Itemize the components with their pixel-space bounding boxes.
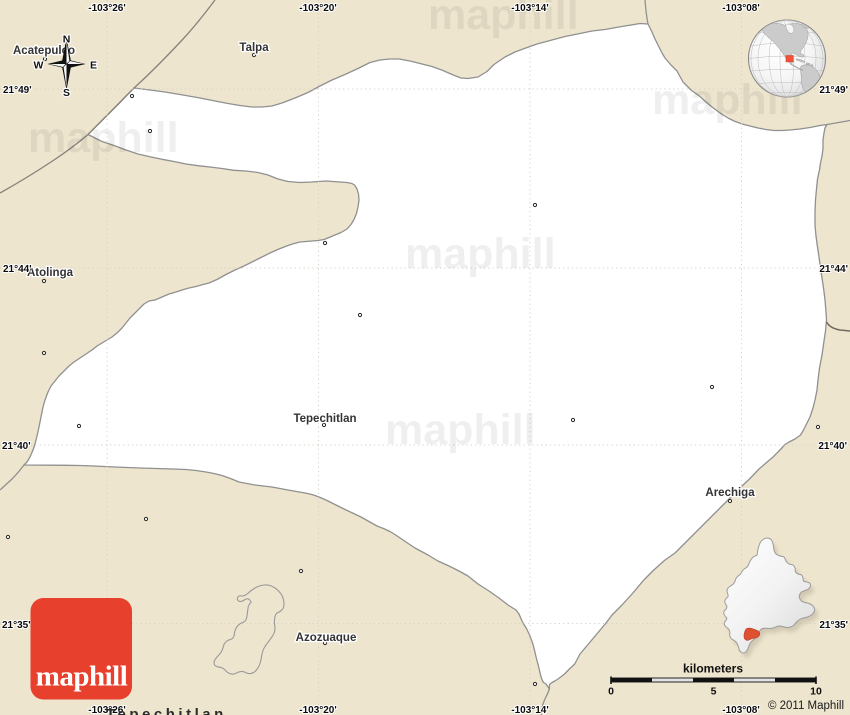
- svg-text:Tepechitlan: Tepechitlan: [293, 413, 356, 425]
- svg-text:21°49': 21°49': [3, 85, 32, 96]
- svg-text:Azozuaque: Azozuaque: [296, 632, 357, 644]
- svg-text:-103°20': -103°20': [299, 705, 337, 715]
- svg-text:maphill: maphill: [385, 406, 536, 454]
- svg-text:-103°14': -103°14': [511, 705, 549, 715]
- svg-text:Tepechitlan: Tepechitlan: [106, 706, 227, 715]
- svg-text:maphill: maphill: [28, 114, 179, 162]
- svg-text:maphill: maphill: [428, 0, 579, 39]
- svg-text:21°40': 21°40': [818, 441, 847, 452]
- svg-text:21°40': 21°40': [2, 441, 31, 452]
- svg-text:W: W: [34, 60, 44, 72]
- svg-text:21°35': 21°35': [819, 620, 848, 631]
- svg-text:-103°26': -103°26': [88, 3, 126, 14]
- svg-text:21°44': 21°44': [819, 264, 848, 275]
- svg-text:Arechiga: Arechiga: [705, 487, 755, 499]
- svg-text:-103°08': -103°08': [722, 705, 760, 715]
- svg-text:0: 0: [608, 686, 614, 698]
- svg-text:Atolinga: Atolinga: [27, 267, 74, 279]
- svg-text:E: E: [90, 60, 97, 72]
- svg-text:maphill: maphill: [405, 230, 556, 278]
- svg-text:-103°08': -103°08': [722, 3, 760, 14]
- svg-text:21°44': 21°44': [3, 264, 32, 275]
- svg-text:-103°20': -103°20': [299, 3, 337, 14]
- svg-text:21°35': 21°35': [2, 620, 31, 631]
- svg-text:maphill: maphill: [36, 661, 128, 693]
- svg-text:Talpa: Talpa: [239, 42, 269, 54]
- svg-text:© 2011 Maphill: © 2011 Maphill: [768, 700, 844, 712]
- svg-text:S: S: [63, 87, 70, 99]
- svg-text:-103°14': -103°14': [511, 3, 549, 14]
- svg-text:21°49': 21°49': [819, 85, 848, 96]
- svg-text:kilometers: kilometers: [683, 662, 743, 676]
- svg-text:N: N: [63, 34, 71, 46]
- svg-text:5: 5: [711, 686, 717, 698]
- svg-text:10: 10: [810, 686, 822, 698]
